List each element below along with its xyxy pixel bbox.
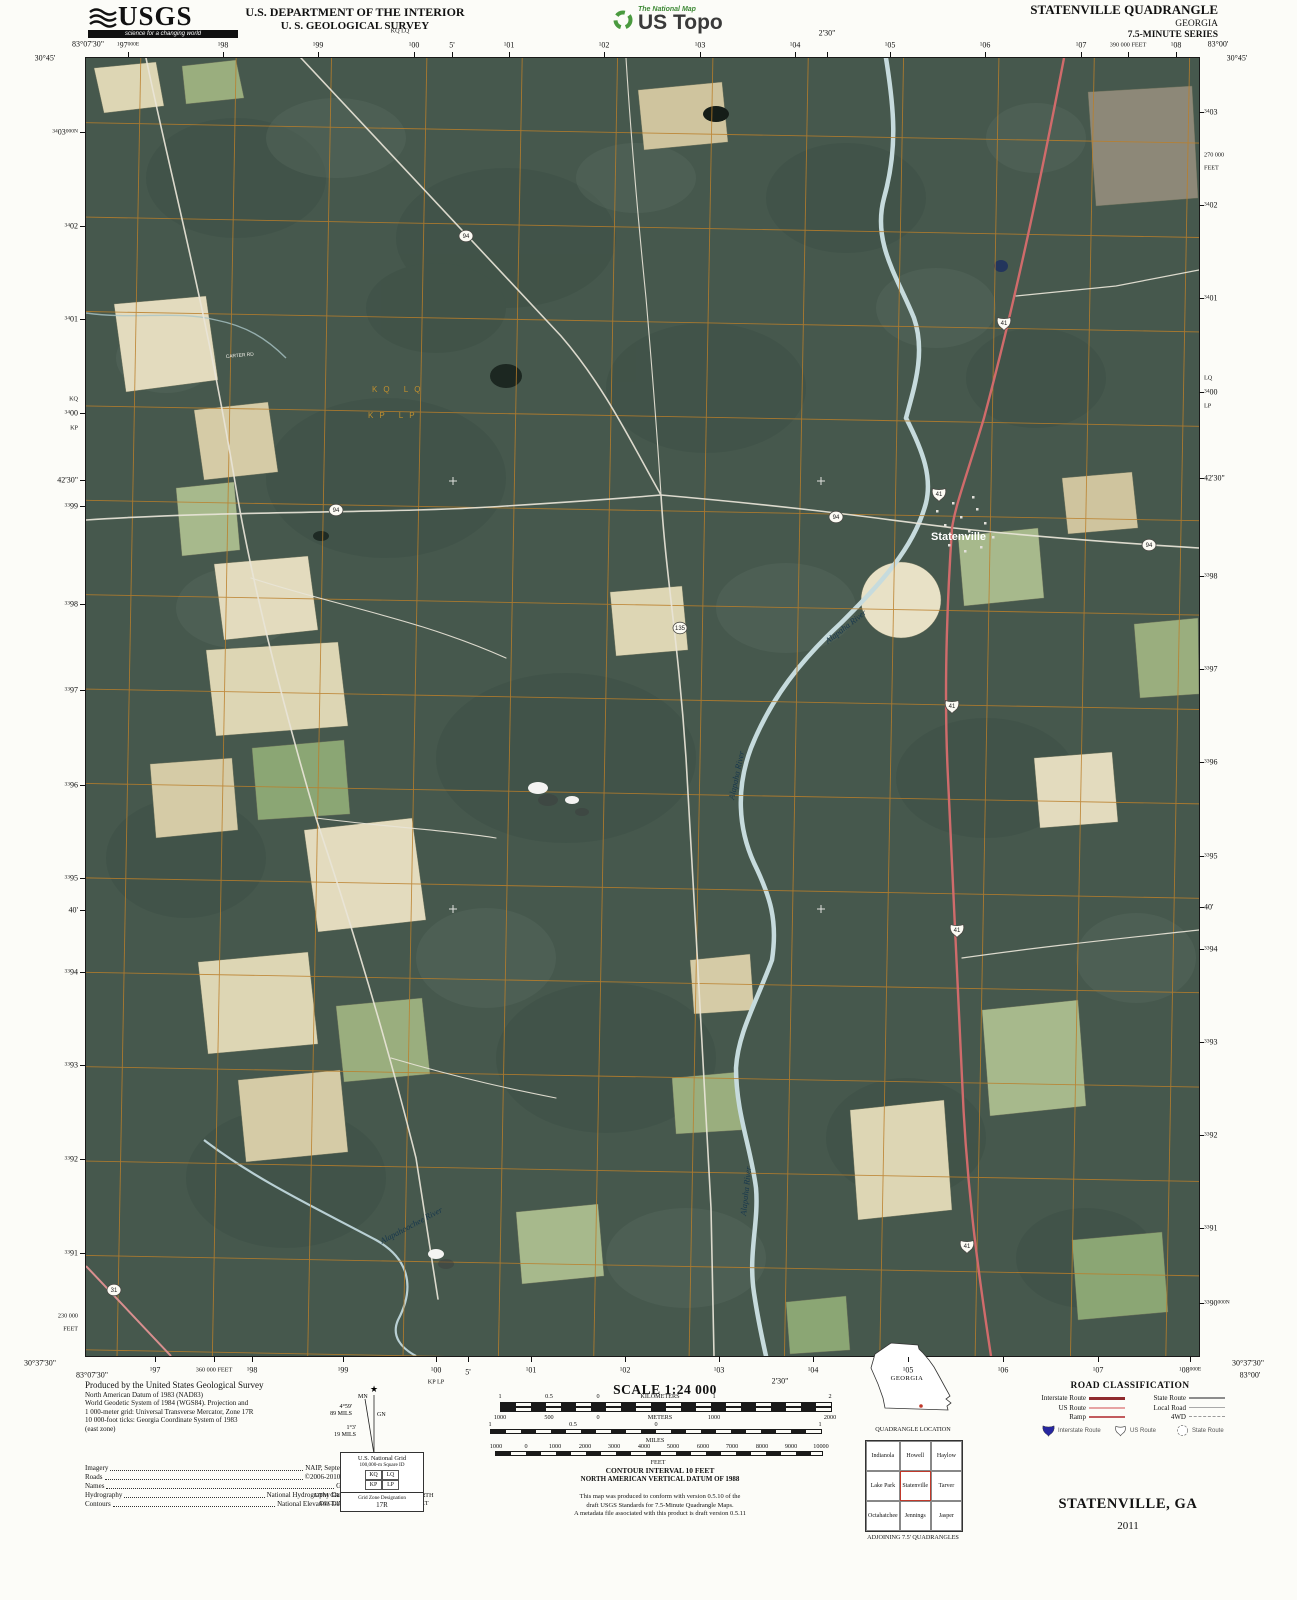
rclabel: State Route [1108, 1394, 1186, 1402]
margin-label: 103 [695, 41, 706, 50]
legend-us-label: US Route [1130, 1428, 1156, 1434]
margin-label: 3398 [65, 600, 79, 609]
state-route-shield: 135 [673, 622, 687, 634]
slb: 2000 [824, 1414, 836, 1421]
legend-state-shield: State Route [1176, 1424, 1224, 1437]
adjoining-quad-haylow: Haylow [931, 1441, 962, 1471]
margin-label: 30°45' [1227, 54, 1248, 63]
margin-label: 3400 [1204, 388, 1218, 397]
margin-label: 199 [313, 41, 324, 50]
slb: 1000 [708, 1414, 720, 1421]
rclabel: 4WD [1108, 1413, 1186, 1421]
usng-square-labels-row1: KQ LQ [372, 385, 426, 394]
rclabel: US Route [1008, 1404, 1086, 1412]
slb: 3000 [608, 1443, 620, 1450]
margin-label: 30°37'30" [24, 1359, 56, 1368]
slb: 0 [596, 1393, 599, 1400]
adjoining-quad-statenville: Statenville [900, 1471, 931, 1501]
edge-tick [128, 52, 129, 57]
rcline [1189, 1397, 1225, 1399]
margin-label: 108000E [1179, 1366, 1201, 1375]
margin-label: 3394 [1204, 945, 1218, 954]
svg-text:31: 31 [111, 1288, 118, 1294]
edge-tick [1199, 907, 1204, 908]
edge-tick [80, 910, 85, 911]
svg-text:135: 135 [675, 626, 686, 632]
margin-label: 390 000 FEET [1110, 42, 1146, 49]
edge-tick [252, 1357, 253, 1362]
margin-label: 3393 [1204, 1038, 1218, 1047]
margin-label: 198 [218, 41, 229, 50]
edge-tick [700, 52, 701, 57]
edge-tick [80, 1159, 85, 1160]
edge-tick [155, 1357, 156, 1362]
margin-label: 199 [338, 1366, 349, 1375]
adjoining-quad-jasper: Jasper [931, 1501, 962, 1531]
margin-label: 270 000 [1204, 152, 1224, 159]
rcline [1189, 1416, 1225, 1417]
edge-tick [1199, 112, 1204, 113]
edge-tick [531, 1357, 532, 1362]
slb: FEET [651, 1459, 666, 1466]
usng-box: U.S. National Grid 100,000-m Square ID K… [340, 1452, 424, 1512]
margin-label: 83°00' [1208, 40, 1229, 49]
margin-label: 83°07'30" [76, 1371, 108, 1380]
margin-label: KP LP [428, 1379, 444, 1386]
svg-text:41: 41 [954, 928, 961, 934]
usng-square-id: KQ [365, 1470, 382, 1480]
edge-tick [80, 226, 85, 227]
usng-square-id: KP [365, 1480, 382, 1490]
road-classification-title: ROAD CLASSIFICATION [1070, 1381, 1189, 1391]
edge-tick [1199, 856, 1204, 857]
slb: 2000 [579, 1443, 591, 1450]
map-frame: KQ LQ KP LP Statenville Alapaha River Al… [85, 57, 1200, 1357]
margin-label: 198 [247, 1366, 258, 1375]
edge-tick [80, 506, 85, 507]
slb: 1 [818, 1421, 821, 1428]
state-name: GEORGIA [891, 1375, 924, 1382]
margin-label: 83°00' [1240, 1371, 1261, 1380]
scalebar-miles [490, 1429, 822, 1434]
margin-label: 230 000 [58, 1313, 78, 1320]
edge-tick [80, 972, 85, 973]
margin-label: FEET [1204, 165, 1219, 172]
usng-square-labels-row2: KP LP [368, 411, 421, 420]
usng-square-id: LP [382, 1480, 399, 1490]
edge-tick [1199, 576, 1204, 577]
margin-label: 30°45' [35, 54, 56, 63]
legend-us-shield: US Route [1114, 1424, 1156, 1437]
gn-mils: 19 MILS [334, 1432, 356, 1438]
edge-tick [1199, 669, 1204, 670]
rclabel: Ramp [1008, 1413, 1086, 1421]
adjoining-caption: ADJOINING 7.5' QUADRANGLES [867, 1534, 959, 1541]
ctr: This map was produced to conform with ve… [580, 1493, 741, 1500]
margin-label: LQ [1204, 375, 1212, 382]
edge-tick [1081, 52, 1082, 57]
svg-text:41: 41 [949, 704, 956, 710]
mn-mils: 89 MILS [330, 1411, 352, 1417]
edge-tick [80, 480, 85, 481]
legend-state-label: State Route [1192, 1428, 1224, 1434]
margin-label: 3400 [65, 409, 79, 418]
quadrangle-title: STATENVILLE QUADRANGLE GEORGIA 7.5-MINUT… [1030, 2, 1218, 40]
svg-text:94: 94 [1146, 543, 1153, 549]
quad-series: 7.5-MINUTE SERIES [1030, 30, 1218, 40]
scalebar-feet [495, 1451, 823, 1456]
us-shield-icon [1114, 1424, 1127, 1437]
edge-tick [80, 1253, 85, 1254]
slb: 1000 [490, 1443, 502, 1450]
rclabel: Interstate Route [1008, 1394, 1086, 1402]
margin-label: 83°07'30" [72, 40, 104, 49]
edge-tick [436, 1357, 437, 1362]
slb: 8000 [756, 1443, 768, 1450]
edge-tick [214, 1357, 215, 1362]
usng-zone-value: 17R [341, 1501, 423, 1509]
margin-label: 104 [790, 41, 801, 50]
usng-subtitle: 100,000-m Square ID [341, 1462, 423, 1468]
slb: 4000 [638, 1443, 650, 1450]
margin-label: 42'30" [1204, 474, 1225, 483]
grid-north-label: GN [377, 1412, 386, 1418]
margin-label: 3390000N [1204, 1299, 1230, 1308]
state-circle-icon [1176, 1424, 1189, 1437]
slb: METERS [648, 1414, 672, 1421]
edge-tick [80, 690, 85, 691]
slb: 0.5 [569, 1421, 577, 1428]
margin-label: 42'30" [57, 476, 78, 485]
margin-label: 3396 [1204, 758, 1218, 767]
edge-tick [795, 52, 796, 57]
edge-tick [719, 1357, 720, 1362]
margin-label: 197 [150, 1366, 161, 1375]
margin-label: 30°37'30" [1232, 1359, 1264, 1368]
edge-tick [452, 52, 453, 57]
edge-tick [1199, 762, 1204, 763]
margin-label: 5' [449, 41, 454, 50]
ctr: A metadata file associated with this pro… [574, 1510, 746, 1517]
state-route-shield: 94 [829, 511, 843, 523]
edge-tick [625, 1357, 626, 1362]
usng-square-grid: KQLQKPLP [365, 1470, 399, 1490]
margin-label: 197000E [117, 41, 139, 50]
edge-tick [1199, 205, 1204, 206]
usng-title: U.S. National Grid [341, 1453, 423, 1462]
slb: 9000 [785, 1443, 797, 1450]
slb: 5000 [667, 1443, 679, 1450]
quadrangle-location-caption: QUADRANGLE LOCATION [875, 1426, 950, 1433]
national-map-icon [612, 9, 634, 31]
quad-name: STATENVILLE QUADRANGLE [1030, 2, 1218, 18]
edge-tick [223, 52, 224, 57]
edge-tick [1199, 298, 1204, 299]
margin-label: 100 [409, 41, 420, 50]
svg-text:94: 94 [333, 508, 340, 514]
usgs-wave-icon [88, 5, 118, 29]
rcline [1189, 1407, 1225, 1408]
margin-label: 3401 [65, 315, 79, 324]
margin-label: 3399 [65, 502, 79, 511]
ustopo-logo: The National Map US Topo [612, 6, 723, 33]
margin-label: 102 [620, 1366, 631, 1375]
slb: 1000 [549, 1443, 561, 1450]
department-heading: U.S. DEPARTMENT OF THE INTERIOR U. S. GE… [180, 5, 530, 32]
slb: 6000 [697, 1443, 709, 1450]
svg-text:41: 41 [964, 1244, 971, 1250]
slb: 0 [524, 1443, 527, 1450]
edge-tick [1176, 52, 1177, 57]
margin-label: 105 [903, 1366, 914, 1375]
svg-text:94: 94 [833, 515, 840, 521]
legend-interstate-shield: Interstate Route [1042, 1424, 1101, 1437]
slb: 1000 [494, 1414, 506, 1421]
dept-line-1: U.S. DEPARTMENT OF THE INTERIOR [180, 5, 530, 20]
edge-tick [890, 52, 891, 57]
margin-label: LP [1204, 403, 1211, 410]
margin-label: KQ LQ [391, 28, 410, 35]
margin-label: 101 [504, 41, 515, 50]
slb: KILOMETERS [640, 1393, 679, 1400]
margin-label: 106 [998, 1366, 1009, 1375]
svg-text:94: 94 [463, 234, 470, 240]
mn-degrees: 4°59' [340, 1403, 352, 1410]
margin-label: 3402 [1204, 201, 1218, 210]
state-locator-map: GEORGIA [863, 1340, 963, 1422]
sheet-name: STATENVILLE, GA [1059, 1496, 1198, 1513]
quad-location-dot [919, 1404, 923, 1408]
margin-label: 3395 [1204, 852, 1218, 861]
svg-text:41: 41 [1001, 321, 1008, 327]
margin-label: 360 000 FEET [196, 1367, 232, 1374]
edge-tick [468, 1357, 469, 1362]
edge-tick [80, 413, 85, 414]
ustopo-label: US Topo [638, 13, 723, 33]
margin-label: 102 [599, 41, 610, 50]
slb: 2 [828, 1393, 831, 1400]
aerial-map-image[interactable]: KQ LQ KP LP Statenville Alapaha River Al… [86, 58, 1199, 1356]
margin-label: 3397 [65, 686, 79, 695]
edge-tick [1199, 1228, 1204, 1229]
state-route-shield: 94 [459, 230, 473, 242]
adjoining-quad-tarver: Tarver [931, 1471, 962, 1501]
state-route-shield: 94 [329, 504, 343, 516]
slb: 7000 [726, 1443, 738, 1450]
edge-tick [80, 132, 85, 133]
margin-label: 101 [526, 1366, 537, 1375]
slb: 500 [544, 1414, 553, 1421]
usng-square-id: LQ [382, 1470, 399, 1480]
margin-label: 3396 [65, 781, 79, 790]
edge-tick [509, 52, 510, 57]
edge-tick [343, 1357, 344, 1362]
state-route-shield: 94 [1142, 539, 1156, 551]
edge-tick [1199, 949, 1204, 950]
edge-tick [1199, 1303, 1204, 1304]
margin-label: 3392 [1204, 1131, 1218, 1140]
margin-label: 104 [808, 1366, 819, 1375]
adjoining-quadrangles: IndianolaHowellHaylowLake ParkStatenvill… [865, 1440, 963, 1532]
contour-interval: CONTOUR INTERVAL 10 FEET [606, 1466, 715, 1475]
state-route-shield: 31 [107, 1284, 121, 1296]
edge-tick [827, 52, 828, 57]
edge-tick [1199, 1042, 1204, 1043]
adjoining-quad-octahatchee: Octahatchee [866, 1501, 900, 1531]
edge-tick [1128, 52, 1129, 57]
margin-label: 3398 [1204, 572, 1218, 581]
interstate-shield-icon [1042, 1424, 1055, 1437]
ctr: draft USGS Standards for 7.5-Minute Quad… [586, 1502, 733, 1509]
edge-tick [80, 1065, 85, 1066]
edge-tick [80, 785, 85, 786]
edge-tick [1003, 1357, 1004, 1362]
margin-label: 100 [431, 1366, 442, 1375]
edge-tick [318, 52, 319, 57]
margin-label: 40' [69, 906, 78, 915]
adjoining-quad-lake-park: Lake Park [866, 1471, 900, 1501]
edge-tick [908, 1357, 909, 1362]
slb: 0 [654, 1421, 657, 1428]
margin-label: 105 [885, 41, 896, 50]
margin-label: 106 [980, 41, 991, 50]
true-north-star: ★ [370, 1384, 378, 1394]
vertical-datum: NORTH AMERICAN VERTICAL DATUM OF 1988 [581, 1475, 740, 1483]
quad-state: GEORGIA [1030, 19, 1218, 29]
edge-tick [813, 1357, 814, 1362]
margin-label: 3391 [1204, 1224, 1218, 1233]
margin-label: 3397 [1204, 665, 1218, 674]
margin-label: 2'30" [772, 1377, 789, 1386]
slb: 1 [488, 1421, 491, 1428]
margin-label: 3395 [65, 874, 79, 883]
dept-line-2: U. S. GEOLOGICAL SURVEY [180, 20, 530, 32]
edge-tick [80, 878, 85, 879]
margin-label: 5' [465, 1368, 470, 1377]
slb: 1 [712, 1393, 715, 1400]
adjoining-quad-indianola: Indianola [866, 1441, 900, 1471]
map-sheet: USGS science for a changing world U.S. D… [0, 0, 1297, 1600]
margin-label: 3401 [1204, 294, 1218, 303]
slb: 10000 [813, 1443, 828, 1450]
adjoining-quad-howell: Howell [900, 1441, 931, 1471]
margin-label: 2'30" [819, 29, 836, 38]
margin-label: 3392 [65, 1155, 79, 1164]
margin-label: 108 [1171, 41, 1182, 50]
edge-tick [414, 52, 415, 57]
margin-label: 3403000N [52, 128, 78, 137]
edge-tick [1199, 392, 1204, 393]
margin-label: 3393 [65, 1061, 79, 1070]
adjoining-quad-jennings: Jennings [900, 1501, 931, 1531]
rclabel: Local Road [1108, 1404, 1186, 1412]
margin-label: KQ [69, 396, 78, 403]
margin-label: 107 [1093, 1366, 1104, 1375]
sheet-year: 2011 [1117, 1520, 1139, 1532]
legend-interstate-label: Interstate Route [1058, 1428, 1101, 1434]
slb: 0.5 [545, 1393, 553, 1400]
edge-tick [1190, 1357, 1191, 1362]
margin-label: KP [70, 425, 78, 432]
slb: 0 [596, 1414, 599, 1421]
svg-text:41: 41 [936, 492, 943, 498]
edge-tick [1199, 1135, 1204, 1136]
margin-label: 3402 [65, 222, 79, 231]
edge-tick [1098, 1357, 1099, 1362]
edge-tick [604, 52, 605, 57]
margin-label: 103 [714, 1366, 725, 1375]
gn-degrees: 1°3' [347, 1424, 356, 1431]
slb: 1 [498, 1393, 501, 1400]
edge-tick [80, 604, 85, 605]
margin-label: 3391 [65, 1249, 79, 1258]
margin-label: 40' [1204, 903, 1213, 912]
scalebar-meters [500, 1407, 832, 1412]
margin-label: 3403 [1204, 108, 1218, 117]
edge-tick [80, 319, 85, 320]
town-label-statenville: Statenville [931, 531, 986, 543]
margin-label: 107 [1076, 41, 1087, 50]
magnetic-north-label: MN [358, 1394, 368, 1400]
edge-tick [985, 52, 986, 57]
edge-tick [1199, 478, 1204, 479]
margin-label: FEET [63, 1326, 78, 1333]
margin-label: 3394 [65, 968, 79, 977]
